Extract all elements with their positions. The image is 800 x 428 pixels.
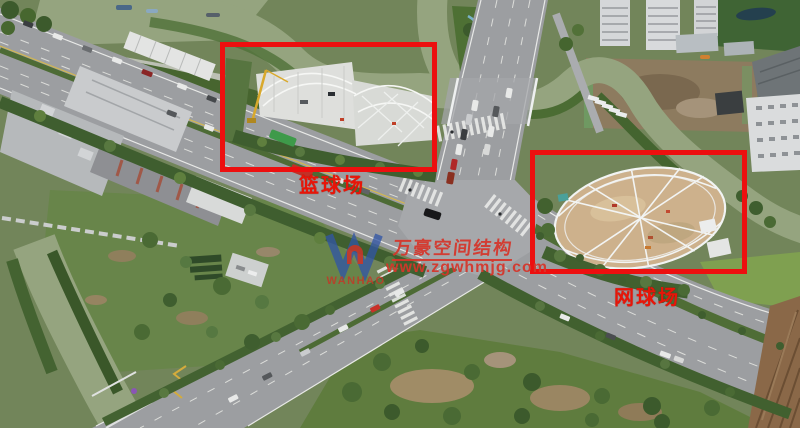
pedestrian-umbrella: [131, 388, 137, 394]
tennis-court-label: 网球场: [614, 288, 680, 308]
logo-w-shape: [329, 235, 379, 271]
dark-flat-roof: [715, 91, 744, 116]
aerial-scene: [0, 0, 800, 428]
basketball-court-label: 篮球场: [299, 176, 365, 196]
watermark-logo: WANHAO: [322, 231, 396, 289]
aerial-photo: 篮球场 网球场 WANHAO 万豪空间结构 www.zgwhmjg.com: [0, 0, 800, 428]
watermark-website: www.zgwhmjg.com: [386, 258, 548, 277]
wanhao-logo-icon: WANHAO: [322, 231, 396, 289]
logo-wordmark: WANHAO: [326, 275, 385, 287]
